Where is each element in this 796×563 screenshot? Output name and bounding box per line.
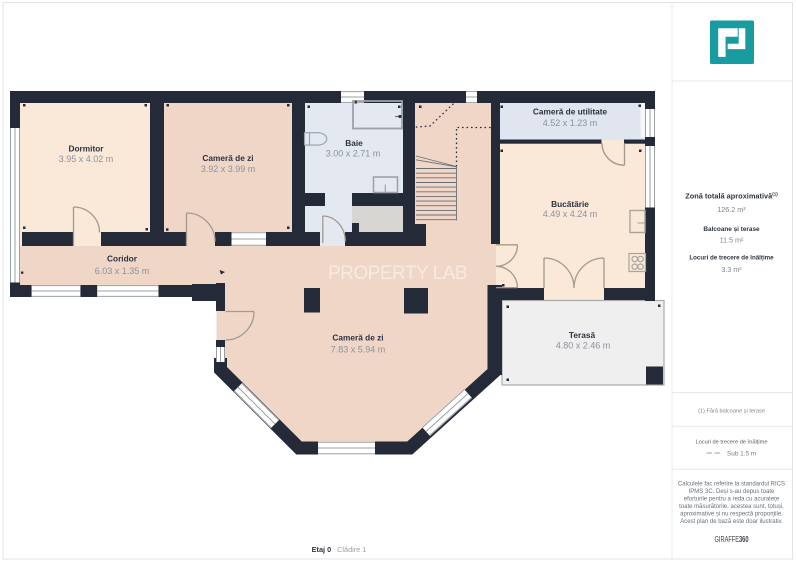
svg-text:Balcoane și terase: Balcoane și terase: [703, 226, 760, 233]
svg-text:Locuri de trecere de înălțime: Locuri de trecere de înălțime: [695, 440, 767, 446]
svg-text:4.49 x 4.24 m: 4.49 x 4.24 m: [543, 209, 598, 219]
svg-text:Dormitor: Dormitor: [68, 143, 104, 153]
svg-text:IPMS 3C. Deși s-au depus toate: IPMS 3C. Deși s-au depus toate: [689, 489, 775, 495]
svg-text:4.80 x 2.46 m: 4.80 x 2.46 m: [556, 341, 611, 351]
svg-text:3.00 x 2.71 m: 3.00 x 2.71 m: [326, 149, 381, 159]
svg-text:Sub 1.5 m: Sub 1.5 m: [727, 450, 756, 457]
svg-text:Cameră de utilitate: Cameră de utilitate: [533, 107, 608, 117]
svg-text:Etaj 0Clădire 1: Etaj 0Clădire 1: [312, 545, 367, 554]
svg-text:Cameră de zi: Cameră de zi: [202, 153, 253, 163]
svg-text:(1) Fără balcoane și terase: (1) Fără balcoane și terase: [698, 409, 765, 415]
svg-text:Baie: Baie: [345, 138, 363, 148]
svg-text:Calculele fac referire la stan: Calculele fac referire la standardul RIC…: [678, 482, 785, 488]
svg-text:Cameră de zi: Cameră de zi: [332, 333, 383, 343]
svg-text:3.3 m²: 3.3 m²: [721, 265, 742, 274]
svg-text:Locuri de trecere de înălțime: Locuri de trecere de înălțime: [689, 255, 774, 262]
svg-text:Zonă totală aproximativă(1): Zonă totală aproximativă(1): [685, 192, 778, 201]
svg-text:126.2 m²: 126.2 m²: [717, 205, 746, 214]
svg-text:eforturile pentru a reda cu ac: eforturile pentru a reda cu acuratețe: [684, 497, 780, 503]
svg-text:11.5 m²: 11.5 m²: [720, 236, 744, 245]
svg-text:PROPERTY LAB: PROPERTY LAB: [328, 263, 467, 284]
svg-text:aproximative și nu respectă pr: aproximative și nu respectă proporțiile.: [680, 512, 783, 518]
svg-text:Terasă: Terasă: [569, 330, 596, 340]
svg-text:3.92 x 3.99 m: 3.92 x 3.99 m: [201, 164, 256, 174]
svg-text:toate măsurătorile, acestea su: toate măsurătorile, acestea sunt, totuși…: [679, 504, 784, 510]
svg-text:Acest plan de bază este doar i: Acest plan de bază este doar ilustrativ.: [680, 519, 783, 525]
svg-text:6.03 x 1.35 m: 6.03 x 1.35 m: [95, 266, 150, 276]
svg-text:Coridor: Coridor: [107, 254, 138, 264]
svg-text:7.83 x 5.94 m: 7.83 x 5.94 m: [331, 345, 386, 355]
svg-text:GIRAFFE360: GIRAFFE360: [715, 534, 749, 544]
svg-text:4.52 x 1.23 m: 4.52 x 1.23 m: [543, 118, 598, 128]
svg-text:Bucătărie: Bucătărie: [551, 199, 589, 209]
svg-text:3.95 x 4.02 m: 3.95 x 4.02 m: [59, 154, 114, 164]
